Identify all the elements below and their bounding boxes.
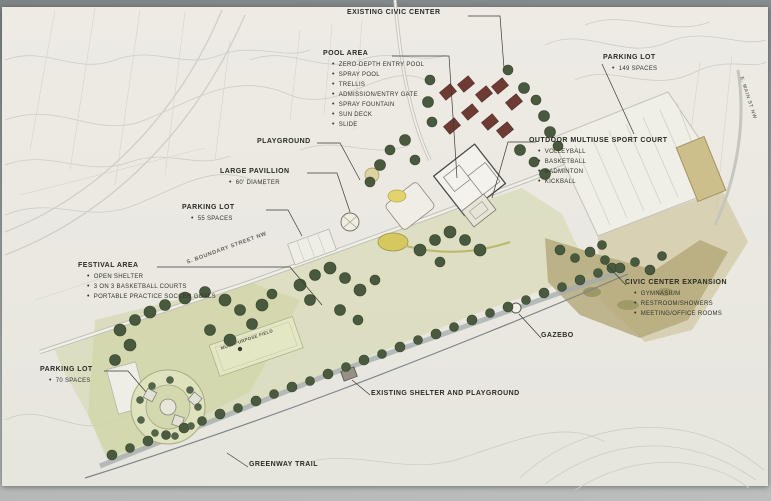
label-title: GAZEBO xyxy=(541,332,574,339)
label-title: EXISTING CIVIC CENTER xyxy=(347,9,440,16)
label-title: CIVIC CENTER EXPANSION xyxy=(625,279,727,286)
label-items: 149 SPACES xyxy=(612,64,657,74)
large-pavillion-structure xyxy=(341,213,359,231)
label-festival-area: FESTIVAL AREA OPEN SHELTER 3 ON 3 BASKET… xyxy=(78,262,216,302)
label-parking-lot-mid: PARKING LOT 55 SPACES xyxy=(182,204,235,224)
label-items: OPEN SHELTER 3 ON 3 BASKETBALL COURTS PO… xyxy=(87,272,216,302)
label-title: FESTIVAL AREA xyxy=(78,262,216,269)
label-greenway-trail: GREENWAY TRAIL xyxy=(249,461,318,468)
label-item: SLIDE xyxy=(332,120,424,130)
label-item: SPRAY POOL xyxy=(332,70,424,80)
existing-civic-center-buildings xyxy=(439,76,522,139)
label-item: OPEN SHELTER xyxy=(87,272,216,282)
label-gazebo: GAZEBO xyxy=(541,332,574,339)
label-item: SPRAY FOUNTAIN xyxy=(332,100,424,110)
label-existing-civic-center: EXISTING CIVIC CENTER xyxy=(347,9,440,16)
label-pool-area: POOL AREA ZERO-DEPTH ENTRY POOL SPRAY PO… xyxy=(323,50,424,130)
label-existing-shelter-and-playground: EXISTING SHELTER AND PLAYGROUND xyxy=(371,390,520,397)
label-playground: PLAYGROUND xyxy=(257,138,311,145)
label-item: ZERO-DEPTH ENTRY POOL xyxy=(332,60,424,70)
label-parking-lot-sw: PARKING LOT 70 SPACES xyxy=(40,366,93,386)
label-large-pavillion: LARGE PAVILLION 60' DIAMETER xyxy=(220,168,290,188)
label-item: KICKBALL xyxy=(538,177,667,187)
label-items: 60' DIAMETER xyxy=(229,178,290,188)
label-items: ZERO-DEPTH ENTRY POOL SPRAY POOL TRELLIS… xyxy=(332,60,424,130)
label-item: GYMNASIUM xyxy=(634,289,727,299)
label-title: PLAYGROUND xyxy=(257,138,311,145)
label-title: PARKING LOT xyxy=(603,54,657,61)
label-items: VOLLEYBALL BASKETBALL BADMINTON KICKBALL xyxy=(538,147,667,187)
label-item: MEETING/OFFICE ROOMS xyxy=(634,309,727,319)
field-marker-dot xyxy=(238,347,242,351)
label-item: TRELLIS xyxy=(332,80,424,90)
label-title: POOL AREA xyxy=(323,50,424,57)
label-civic-center-expansion: CIVIC CENTER EXPANSION GYMNASIUM RESTROO… xyxy=(625,279,727,319)
label-item: RESTROOM/SHOWERS xyxy=(634,299,727,309)
label-item: BADMINTON xyxy=(538,167,667,177)
label-title: EXISTING SHELTER AND PLAYGROUND xyxy=(371,390,520,397)
photo-of-site-plan: EXISTING CIVIC CENTER POOL AREA ZERO-DEP… xyxy=(0,0,771,501)
label-outdoor-multiuse-sport-court: OUTDOOR MULTIUSE SPORT COURT VOLLEYBALL … xyxy=(529,137,667,187)
label-item: BASKETBALL xyxy=(538,157,667,167)
label-item: 60' DIAMETER xyxy=(229,178,290,188)
label-item: ADMISSION/ENTRY GATE xyxy=(332,90,424,100)
label-items: 55 SPACES xyxy=(191,214,235,224)
label-item: 55 SPACES xyxy=(191,214,235,224)
label-item: 149 SPACES xyxy=(612,64,657,74)
label-title: GREENWAY TRAIL xyxy=(249,461,318,468)
label-parking-lot-ne: PARKING LOT 149 SPACES xyxy=(603,54,657,74)
label-item: SUN DECK xyxy=(332,110,424,120)
label-title: LARGE PAVILLION xyxy=(220,168,290,175)
label-title: PARKING LOT xyxy=(40,366,93,373)
label-item: VOLLEYBALL xyxy=(538,147,667,157)
label-item: 3 ON 3 BASKETBALL COURTS xyxy=(87,282,216,292)
label-items: 70 SPACES xyxy=(49,376,93,386)
label-items: GYMNASIUM RESTROOM/SHOWERS MEETING/OFFIC… xyxy=(634,289,727,319)
label-title: PARKING LOT xyxy=(182,204,235,211)
spray-pool xyxy=(388,190,406,202)
label-title: OUTDOOR MULTIUSE SPORT COURT xyxy=(529,137,667,144)
label-item: PORTABLE PRACTICE SOCCER GOALS xyxy=(87,292,216,302)
label-item: 70 SPACES xyxy=(49,376,93,386)
